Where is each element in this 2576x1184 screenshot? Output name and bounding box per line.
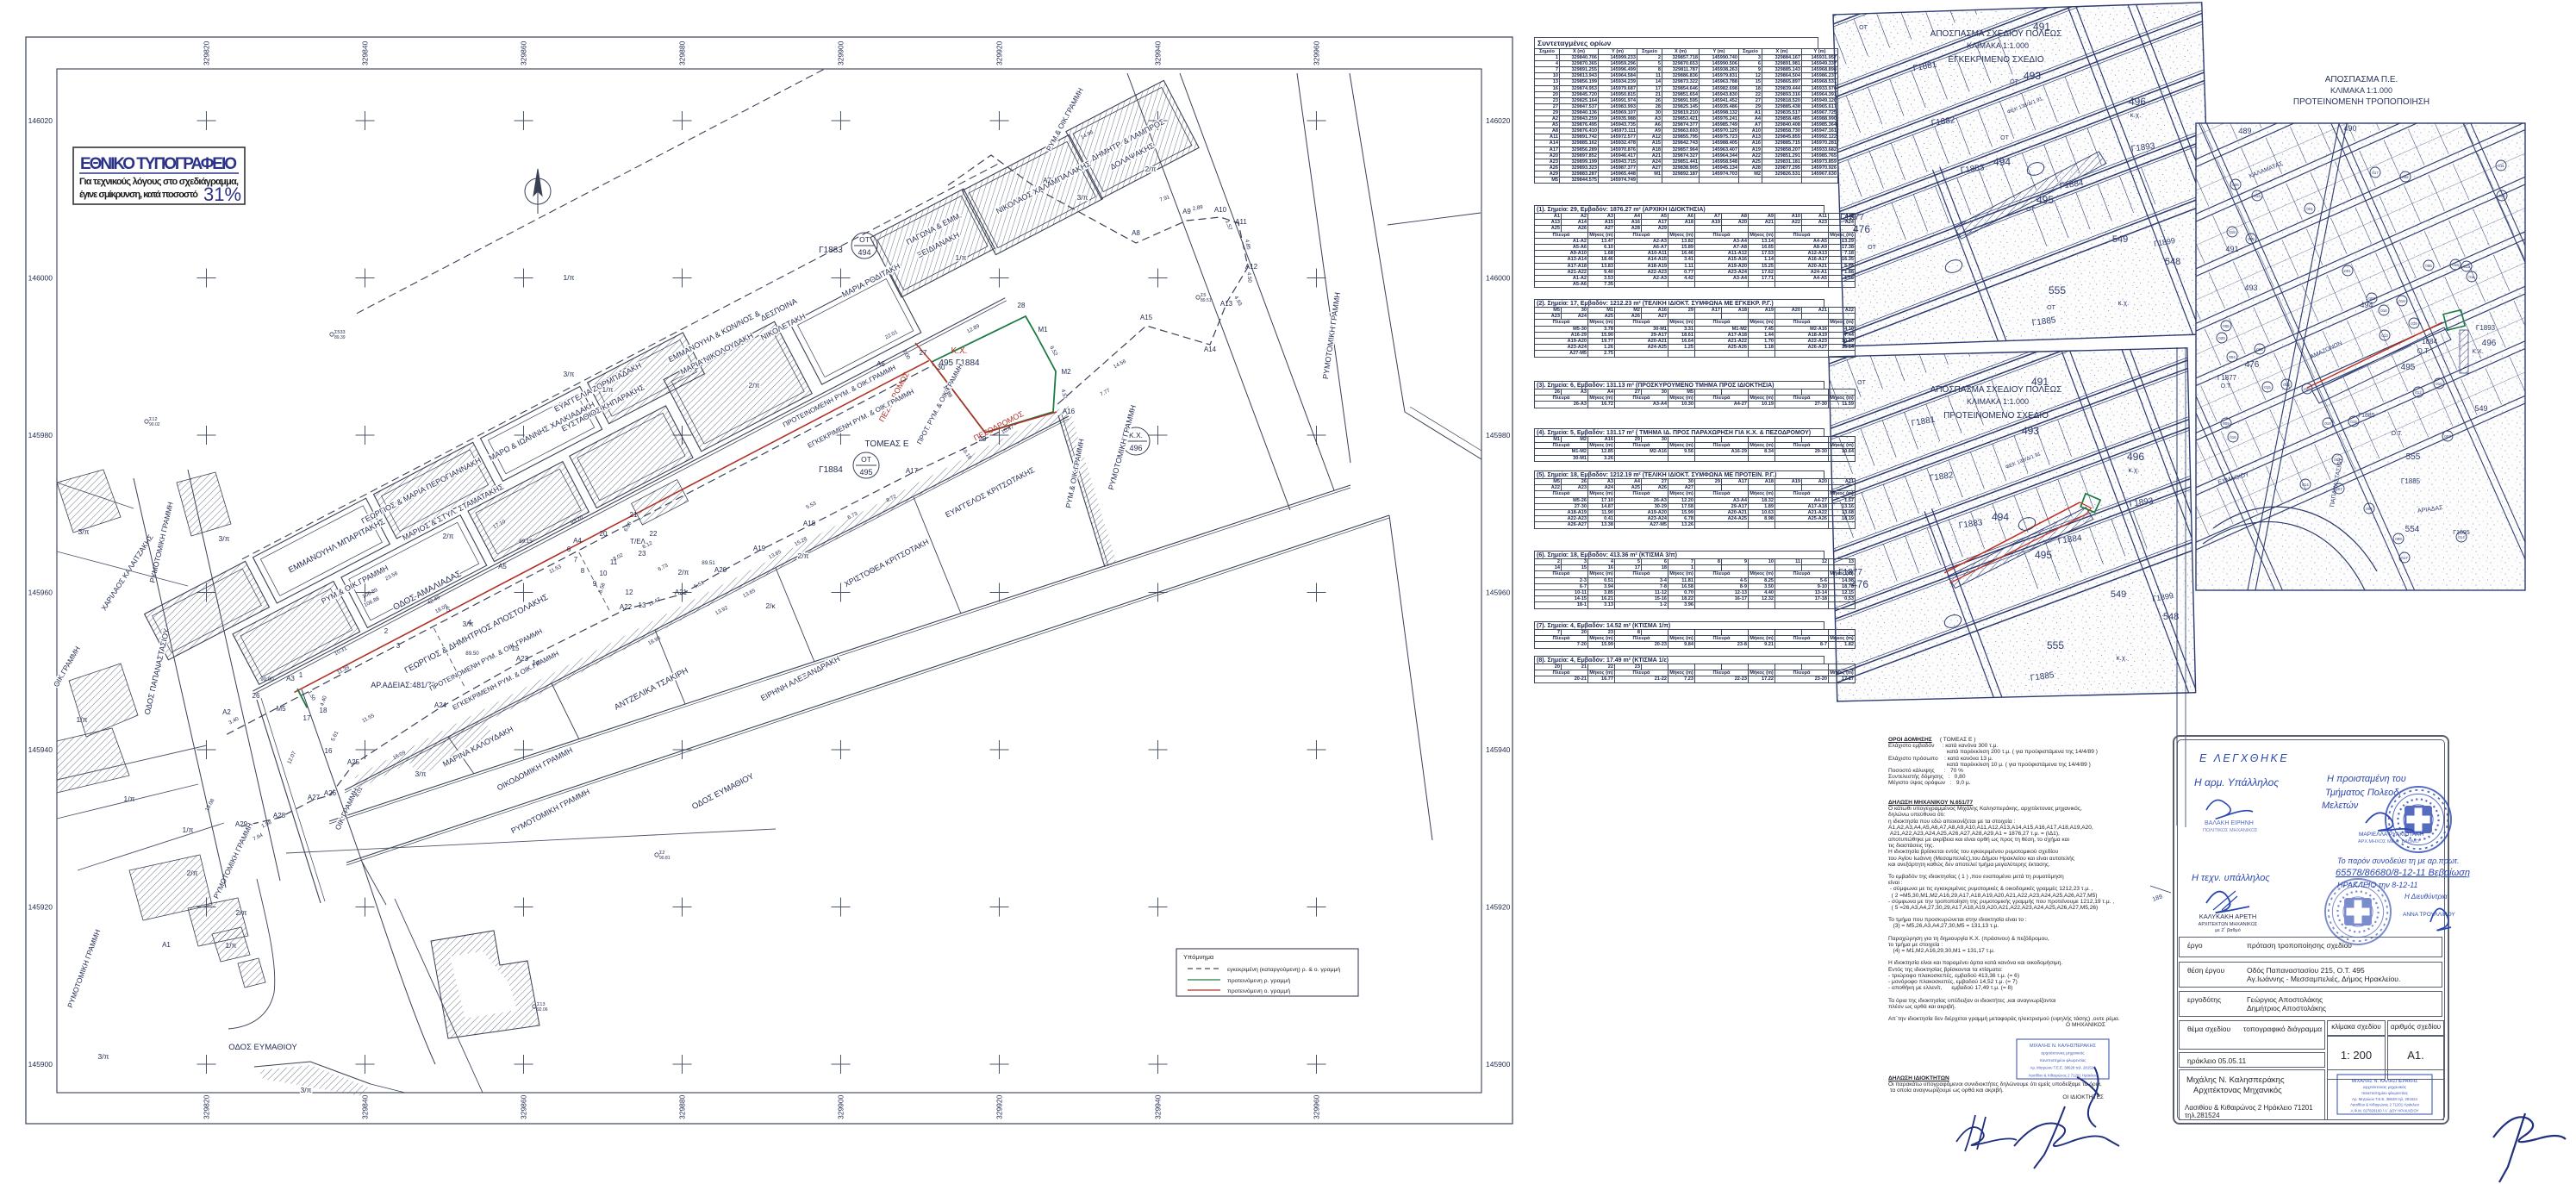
svg-text:89.51: 89.51: [1201, 298, 1212, 303]
svg-text:2/π: 2/π: [1145, 165, 1157, 173]
svg-text:4.50: 4.50: [1245, 272, 1252, 284]
svg-text:2/π: 2/π: [443, 532, 454, 540]
svg-text:013: 013: [2254, 194, 2261, 198]
svg-text:κ.χ.: κ.χ.: [2118, 299, 2130, 307]
svg-text:A24: A24: [434, 701, 447, 709]
svg-text:4: 4: [468, 619, 472, 626]
svg-text:8: 8: [581, 567, 585, 575]
svg-text:549: 549: [2474, 404, 2487, 413]
svg-text:019: 019: [2324, 421, 2331, 426]
svg-text:ΚΛΙΜΑΚΑ 1:1.000: ΚΛΙΜΑΚΑ 1:1.000: [1967, 41, 2029, 50]
svg-text:26: 26: [253, 692, 260, 700]
svg-text:002: 002: [2444, 434, 2451, 439]
svg-text:145980: 145980: [1486, 431, 1511, 439]
svg-text:005: 005: [2425, 264, 2432, 268]
svg-text:ΟΤ: ΟΤ: [2047, 305, 2055, 311]
svg-text:493: 493: [2022, 425, 2039, 437]
svg-text:A11: A11: [1235, 218, 1247, 226]
svg-text:329960: 329960: [1313, 41, 1321, 65]
svg-text:476: 476: [2245, 360, 2260, 370]
svg-text:496: 496: [2129, 96, 2146, 108]
svg-text:493: 493: [2244, 284, 2257, 292]
svg-text:Γ1885: Γ1885: [2358, 413, 2375, 419]
svg-text:1/π: 1/π: [602, 385, 614, 394]
svg-text:020: 020: [2218, 336, 2225, 340]
svg-text:3/π: 3/π: [98, 1052, 109, 1061]
svg-text:2/π: 2/π: [749, 381, 760, 389]
svg-text:A8: A8: [1132, 229, 1140, 237]
svg-text:017: 017: [2372, 171, 2379, 175]
svg-text:494: 494: [2360, 301, 2373, 309]
svg-text:90.81: 90.81: [659, 856, 671, 861]
svg-text:A23: A23: [516, 655, 529, 663]
svg-text:008: 008: [2256, 347, 2263, 352]
svg-text:ΟΔΟΣ ΕΥΜΑΘΙΟΥ: ΟΔΟΣ ΕΥΜΑΘΙΟΥ: [228, 1043, 297, 1052]
svg-text:23: 23: [639, 550, 646, 558]
svg-text:A20: A20: [714, 566, 727, 574]
svg-text:491: 491: [2225, 245, 2238, 253]
svg-text:ΑΠΟΣΠΑΣΜΑ Π.Ε.: ΑΠΟΣΠΑΣΜΑ Π.Ε.: [2325, 75, 2398, 84]
svg-text:22: 22: [650, 530, 658, 538]
svg-text:ΑΠΟΣΠΑΣΜΑ ΣΧΕΔΙΟΥ ΠΟΛΕΩΣ: ΑΠΟΣΠΑΣΜΑ ΣΧΕΔΙΟΥ ΠΟΛΕΩΣ: [1930, 29, 2062, 39]
svg-text:A10: A10: [1214, 206, 1227, 214]
svg-text:20: 20: [600, 530, 608, 538]
svg-text:89.50: 89.50: [465, 651, 479, 657]
svg-text:A26: A26: [324, 789, 337, 797]
svg-text:A25: A25: [347, 758, 360, 766]
svg-text:011: 011: [2498, 164, 2504, 168]
svg-text:016: 016: [2398, 299, 2405, 303]
svg-text:007: 007: [2336, 487, 2342, 491]
svg-text:ΟΤ: ΟΤ: [1857, 380, 1866, 386]
svg-text:018: 018: [2452, 263, 2459, 267]
svg-text:89.39: 89.39: [334, 335, 346, 340]
svg-text:189: 189: [2152, 894, 2163, 903]
svg-text:004: 004: [2229, 355, 2236, 359]
svg-text:ΟΤ: ΟΤ: [861, 455, 871, 464]
svg-text:548: 548: [2163, 612, 2179, 622]
svg-text:έγινε σμίκρυνση, κατά ποσοστό: έγινε σμίκρυνση, κατά ποσοστό: [79, 190, 198, 200]
svg-text:Γ1877: Γ1877: [2217, 374, 2237, 382]
svg-text:Γ1893: Γ1893: [2476, 324, 2496, 332]
svg-text:145980: 145980: [28, 431, 53, 439]
svg-text:6: 6: [567, 545, 571, 553]
svg-text:M1: M1: [1038, 326, 1048, 333]
svg-text:1/π: 1/π: [564, 273, 575, 282]
svg-text:145900: 145900: [1486, 1060, 1511, 1069]
svg-text:012: 012: [2415, 390, 2422, 395]
svg-text:A19: A19: [753, 545, 766, 552]
svg-text:A2: A2: [222, 708, 231, 716]
svg-text:329840: 329840: [361, 1094, 370, 1119]
svg-text:A1: A1: [162, 941, 171, 949]
svg-text:145940: 145940: [28, 745, 53, 754]
svg-text:A21: A21: [675, 589, 688, 596]
svg-text:495: 495: [2035, 549, 2052, 561]
svg-text:ΟΤ: ΟΤ: [1868, 245, 1876, 251]
svg-text:493: 493: [2024, 70, 2041, 82]
svg-text:2/π: 2/π: [798, 551, 809, 560]
svg-text:005: 005: [2223, 324, 2230, 328]
svg-text:Κ.Χ.: Κ.Χ.: [951, 346, 968, 356]
svg-text:ΟΤ: ΟΤ: [2000, 135, 2009, 141]
svg-text:145960: 145960: [28, 589, 53, 597]
svg-text:προτεινόμενη ρ. γραμμή: προτεινόμενη ρ. γραμμή: [1227, 977, 1290, 984]
svg-text:496: 496: [2127, 451, 2144, 463]
svg-text:M2: M2: [1061, 368, 1071, 376]
svg-text:A6: A6: [876, 360, 885, 368]
svg-text:ΤΟΜΕΑΣ Ε: ΤΟΜΕΑΣ Ε: [864, 439, 908, 449]
svg-text:020: 020: [2304, 387, 2311, 391]
svg-text:κ.χ.: κ.χ.: [2117, 654, 2128, 662]
svg-text:494: 494: [858, 248, 870, 257]
svg-text:A5: A5: [498, 563, 507, 570]
svg-text:3/π: 3/π: [1077, 193, 1088, 202]
svg-text:004: 004: [2366, 507, 2373, 511]
svg-text:Ο.Τ.: Ο.Τ.: [2392, 431, 2403, 437]
svg-text:ΑΡ.ΑΔΕΙΑΣ:481/78: ΑΡ.ΑΔΕΙΑΣ:481/78: [371, 681, 435, 689]
svg-text:010: 010: [2380, 308, 2387, 313]
svg-text:A28: A28: [273, 812, 286, 819]
svg-text:Ο.Τ.: Ο.Τ.: [2417, 347, 2430, 355]
svg-text:Γ1884: Γ1884: [819, 465, 843, 475]
svg-text:A3: A3: [286, 675, 295, 682]
svg-text:12: 12: [626, 589, 633, 596]
svg-text:146020: 146020: [28, 116, 53, 125]
svg-text:548: 548: [2165, 257, 2180, 267]
svg-text:006: 006: [2498, 194, 2505, 198]
svg-text:003: 003: [2368, 296, 2375, 301]
svg-text:30: 30: [938, 364, 945, 371]
svg-text:329840: 329840: [361, 41, 370, 65]
svg-text:017: 017: [2401, 556, 2408, 560]
svg-text:495: 495: [859, 468, 872, 477]
svg-text:A18: A18: [803, 520, 816, 527]
svg-text:494: 494: [1992, 511, 2009, 523]
svg-text:A13: A13: [1220, 300, 1233, 308]
svg-text:329920: 329920: [995, 41, 1004, 65]
svg-text:555: 555: [2049, 284, 2066, 296]
svg-text:1884: 1884: [2422, 338, 2437, 346]
svg-text:329860: 329860: [520, 41, 528, 65]
svg-text:001: 001: [2306, 207, 2313, 211]
svg-text:M5: M5: [276, 705, 286, 713]
svg-text:329820: 329820: [203, 1094, 211, 1119]
svg-text:ΠΡΟΤΕΙΝΟΜΕΝΟ ΣΧΕΔΙΟ: ΠΡΟΤΕΙΝΟΜΕΝΟ ΣΧΕΔΙΟ: [1943, 411, 2049, 421]
svg-text:490: 490: [2343, 124, 2356, 133]
svg-text:A17: A17: [906, 467, 919, 475]
svg-text:009: 009: [2223, 421, 2230, 426]
svg-text:329880: 329880: [678, 41, 687, 65]
svg-text:28: 28: [1018, 302, 1026, 309]
svg-text:A29: A29: [235, 820, 248, 828]
svg-text:145900: 145900: [28, 1060, 53, 1069]
svg-text:ΟΤ: ΟΤ: [859, 235, 870, 244]
svg-text:14: 14: [533, 659, 540, 667]
svg-text:496: 496: [1129, 444, 1142, 452]
svg-text:549: 549: [2111, 589, 2126, 600]
svg-text:145940: 145940: [1486, 745, 1511, 754]
svg-text:κ.χ.: κ.χ.: [2130, 111, 2142, 119]
svg-text:554: 554: [2405, 525, 2420, 534]
svg-text:κ.χ.: κ.χ.: [2129, 466, 2140, 474]
svg-text:015: 015: [2264, 385, 2271, 389]
svg-text:Γ1885: Γ1885: [2401, 477, 2421, 485]
svg-text:ΟΤ: ΟΤ: [2010, 79, 2018, 85]
svg-text:A27: A27: [308, 794, 321, 801]
svg-text:012: 012: [2463, 265, 2470, 269]
svg-text:3/π: 3/π: [219, 534, 230, 543]
svg-text:011: 011: [2468, 275, 2475, 279]
svg-text:Ο.Τ.: Ο.Τ.: [2221, 383, 2232, 389]
svg-text:329880: 329880: [678, 1094, 687, 1119]
svg-text:329920: 329920: [995, 1094, 1004, 1119]
svg-text:89.51: 89.51: [702, 560, 715, 566]
svg-text:145920: 145920: [1486, 903, 1511, 912]
svg-text:002: 002: [2402, 175, 2409, 179]
svg-text:496: 496: [2482, 339, 2497, 348]
svg-text:1/π: 1/π: [183, 826, 194, 834]
svg-text:008: 008: [2248, 237, 2255, 241]
svg-text:A7: A7: [1043, 177, 1051, 184]
svg-text:ΠΡΟΤΕΙΝΟΜΕΝΗ ΤΡΟΠΟΠΟΙΗΣΗ: ΠΡΟΤΕΙΝΟΜΕΝΗ ΤΡΟΠΟΠΟΙΗΣΗ: [2293, 97, 2429, 107]
svg-text:146000: 146000: [1486, 274, 1511, 283]
svg-text:2/κ: 2/κ: [765, 601, 776, 610]
svg-text:476: 476: [1853, 223, 1870, 235]
svg-text:ΚΛΙΜΑΚΑ 1:1.000: ΚΛΙΜΑΚΑ 1:1.000: [2330, 86, 2392, 95]
svg-text:329940: 329940: [1154, 1094, 1163, 1119]
svg-text:ΕΘΝΙΚΟ ΤΥΠΟΓΡΑΦΕΙΟ: ΕΘΝΙΚΟ ΤΥΠΟΓΡΑΦΕΙΟ: [80, 155, 237, 173]
svg-text:329820: 329820: [203, 41, 211, 65]
svg-text:90.00: 90.00: [260, 676, 274, 682]
svg-text:16: 16: [325, 747, 333, 755]
svg-text:555: 555: [2406, 452, 2421, 462]
svg-text:7: 7: [574, 556, 578, 564]
svg-text:146000: 146000: [28, 274, 53, 283]
svg-text:Υπόμνημα: Υπόμνημα: [1183, 953, 1214, 961]
svg-text:495: 495: [2401, 363, 2416, 372]
svg-text:329860: 329860: [520, 1094, 528, 1119]
svg-text:3: 3: [396, 642, 401, 650]
svg-text:146020: 146020: [1486, 116, 1511, 125]
svg-text:10: 10: [600, 570, 608, 577]
svg-text:555: 555: [2047, 639, 2064, 651]
svg-text:329900: 329900: [837, 1094, 845, 1119]
svg-text:010: 010: [2436, 382, 2442, 386]
svg-text:329940: 329940: [1154, 41, 1163, 65]
svg-text:9: 9: [593, 580, 597, 588]
svg-text:003: 003: [2283, 383, 2290, 387]
svg-text:494: 494: [1993, 156, 2011, 168]
svg-text:007: 007: [2334, 458, 2341, 462]
svg-text:3/π: 3/π: [415, 770, 427, 778]
svg-text:145920: 145920: [28, 903, 53, 912]
svg-text:17: 17: [303, 714, 311, 722]
svg-text:1: 1: [299, 671, 303, 679]
svg-text:014: 014: [2302, 483, 2309, 487]
svg-text:A4: A4: [573, 537, 582, 545]
svg-text:Κ.Χ.: Κ.Χ.: [2472, 349, 2483, 355]
svg-text:89.15: 89.15: [519, 539, 533, 545]
svg-text:ΚΛΙΜΑΚΑ 1:1.000: ΚΛΙΜΑΚΑ 1:1.000: [1967, 397, 2029, 406]
svg-text:A9: A9: [1182, 208, 1191, 215]
svg-text:019: 019: [2411, 321, 2417, 326]
svg-text:21: 21: [630, 511, 638, 519]
svg-text:92.06: 92.06: [537, 1007, 548, 1013]
svg-text:2: 2: [384, 627, 389, 635]
svg-text:006: 006: [2232, 183, 2239, 187]
svg-text:495: 495: [2036, 194, 2054, 206]
svg-text:A16: A16: [1063, 408, 1076, 415]
svg-text:Κ.Χ.: Κ.Χ.: [1129, 431, 1143, 439]
svg-text:29: 29: [979, 435, 987, 443]
svg-text:A12: A12: [1245, 263, 1258, 271]
svg-text:014: 014: [2458, 535, 2465, 539]
svg-text:1/π: 1/π: [956, 253, 967, 262]
svg-text:015: 015: [2350, 420, 2357, 424]
svg-text:329900: 329900: [837, 41, 845, 65]
svg-text:329960: 329960: [1313, 1094, 1321, 1119]
svg-text:009: 009: [2395, 537, 2402, 541]
svg-text:549: 549: [2112, 234, 2128, 245]
svg-text:016: 016: [2230, 435, 2236, 439]
svg-text:A15: A15: [1140, 314, 1153, 321]
svg-text:27: 27: [920, 349, 927, 357]
svg-text:A22: A22: [620, 603, 633, 611]
svg-text:001: 001: [2344, 269, 2351, 273]
svg-text:Γ1883: Γ1883: [819, 246, 843, 255]
svg-text:ΟΤ: ΟΤ: [2026, 207, 2035, 213]
svg-text:13: 13: [639, 601, 646, 609]
svg-text:90.02: 90.02: [149, 422, 160, 427]
svg-text:013: 013: [2381, 333, 2388, 338]
svg-text:145960: 145960: [1486, 589, 1511, 597]
svg-text:018: 018: [2229, 230, 2236, 234]
svg-text:3/π: 3/π: [564, 370, 575, 378]
svg-text:18: 18: [320, 707, 327, 714]
svg-text:A14: A14: [1204, 346, 1217, 353]
svg-text:15: 15: [512, 645, 520, 652]
svg-text:489: 489: [2238, 127, 2251, 135]
svg-text:ΕΓΚΕΚΡΙΜΕΝΟ ΣΧΕΔΙΟ: ΕΓΚΕΚΡΙΜΕΝΟ ΣΧΕΔΙΟ: [1948, 55, 2043, 65]
svg-text:31%: 31%: [203, 184, 241, 205]
svg-text:ΑΠΟΣΠΑΣΜΑ ΣΧΕΔΙΟΥ ΠΟΛΕΩΣ: ΑΠΟΣΠΑΣΜΑ ΣΧΕΔΙΟΥ ΠΟΛΕΩΣ: [1930, 385, 2062, 395]
svg-text:ΟΤ: ΟΤ: [1859, 25, 1868, 31]
svg-text:εγκεκριμένη (καταργούμενη) ρ.: εγκεκριμένη (καταργούμενη) ρ. & ο. γραμμ…: [1227, 966, 1340, 973]
svg-text:2/π: 2/π: [678, 568, 689, 576]
svg-text:προτεινόμενη ο. γραμμή: προτεινόμενη ο. γραμμή: [1227, 988, 1290, 994]
